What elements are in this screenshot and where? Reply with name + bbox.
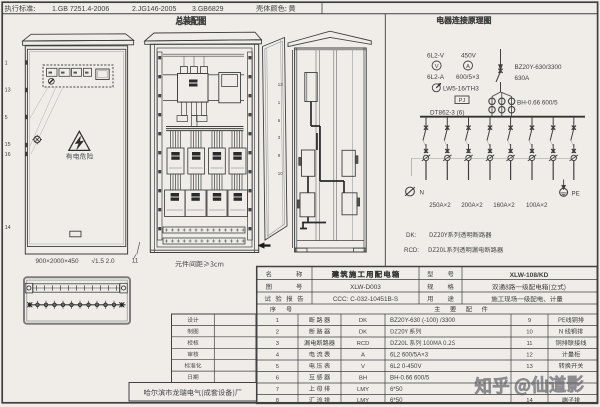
svg-text:CCC: C-032-10451B-S: CCC: C-032-10451B-S [333,296,398,303]
svg-text:XLW-D003: XLW-D003 [350,284,381,291]
svg-text:1.GB 7251.4-2006: 1.GB 7251.4-2006 [52,6,109,13]
svg-text:900×2000×450: 900×2000×450 [36,258,79,265]
svg-text:100A×2: 100A×2 [526,202,548,209]
svg-text:PJ: PJ [459,98,466,104]
svg-text:V: V [435,64,439,70]
svg-text:13: 13 [526,364,533,370]
svg-text:14: 14 [526,398,533,404]
svg-text:DK:: DK: [406,232,417,239]
svg-text:6L2 0-450V: 6L2 0-450V [390,363,422,370]
svg-text:10: 10 [278,171,283,176]
svg-text:15: 15 [5,142,11,148]
svg-text:200A×2: 200A×2 [461,202,483,209]
svg-text:LMY: LMY [357,398,369,404]
svg-text:RCD:: RCD: [404,247,419,254]
svg-text:BH-0.66 600/5: BH-0.66 600/5 [517,100,558,107]
svg-text:11: 11 [526,341,532,347]
svg-text:A: A [466,64,470,70]
svg-text:6*50: 6*50 [390,397,403,404]
svg-text:2.JG146-2005: 2.JG146-2005 [132,6,176,13]
svg-text:BZ20Y-630 (-100) /3300: BZ20Y-630 (-100) /3300 [390,317,456,324]
svg-text:BZ20Y-630/3300: BZ20Y-630/3300 [515,64,563,71]
svg-text:6*50: 6*50 [390,386,403,393]
svg-text:PE: PE [572,191,580,198]
svg-text:DK: DK [359,318,367,324]
svg-text:7: 7 [276,387,279,393]
svg-text:XLW-108/KD: XLW-108/KD [510,272,549,279]
svg-text:6L2 600/5A×3: 6L2 600/5A×3 [390,352,429,359]
svg-text:√1.5 2.0: √1.5 2.0 [92,257,115,265]
svg-text:DT862-3 (6): DT862-3 (6) [430,109,464,116]
svg-text:6L2-A: 6L2-A [427,74,445,81]
svg-text:LW5-16/TH3: LW5-16/TH3 [443,85,479,92]
svg-text:450V: 450V [461,53,477,60]
svg-text:DK: DK [359,330,367,336]
svg-text:LMY: LMY [357,387,369,393]
svg-text:2: 2 [276,330,279,336]
svg-text:12: 12 [278,82,283,87]
svg-text:BH-0.66 600/5: BH-0.66 600/5 [390,374,430,381]
svg-text:14: 14 [5,225,11,231]
svg-text:V: V [361,364,365,370]
svg-text:RCD: RCD [357,341,370,347]
svg-text:5: 5 [5,115,8,121]
svg-text:11: 11 [132,258,139,265]
svg-text:1: 1 [5,61,8,67]
svg-text:6L2-V: 6L2-V [427,53,445,60]
svg-text:12: 12 [526,353,533,359]
svg-text:160A×2: 160A×2 [493,202,515,209]
svg-text:16: 16 [5,152,11,158]
svg-text:600/5×3: 600/5×3 [456,74,480,81]
svg-text:BH: BH [359,375,367,381]
svg-text:1: 1 [276,318,279,324]
svg-text:10: 10 [526,330,533,336]
svg-text:3.GB6829: 3.GB6829 [192,6,224,13]
svg-text:250A×2: 250A×2 [429,202,451,209]
svg-text:N: N [420,190,424,197]
svg-text:13: 13 [5,88,11,94]
svg-text:9: 9 [528,318,531,324]
svg-text:630A: 630A [515,75,531,82]
svg-text:A: A [361,353,365,359]
